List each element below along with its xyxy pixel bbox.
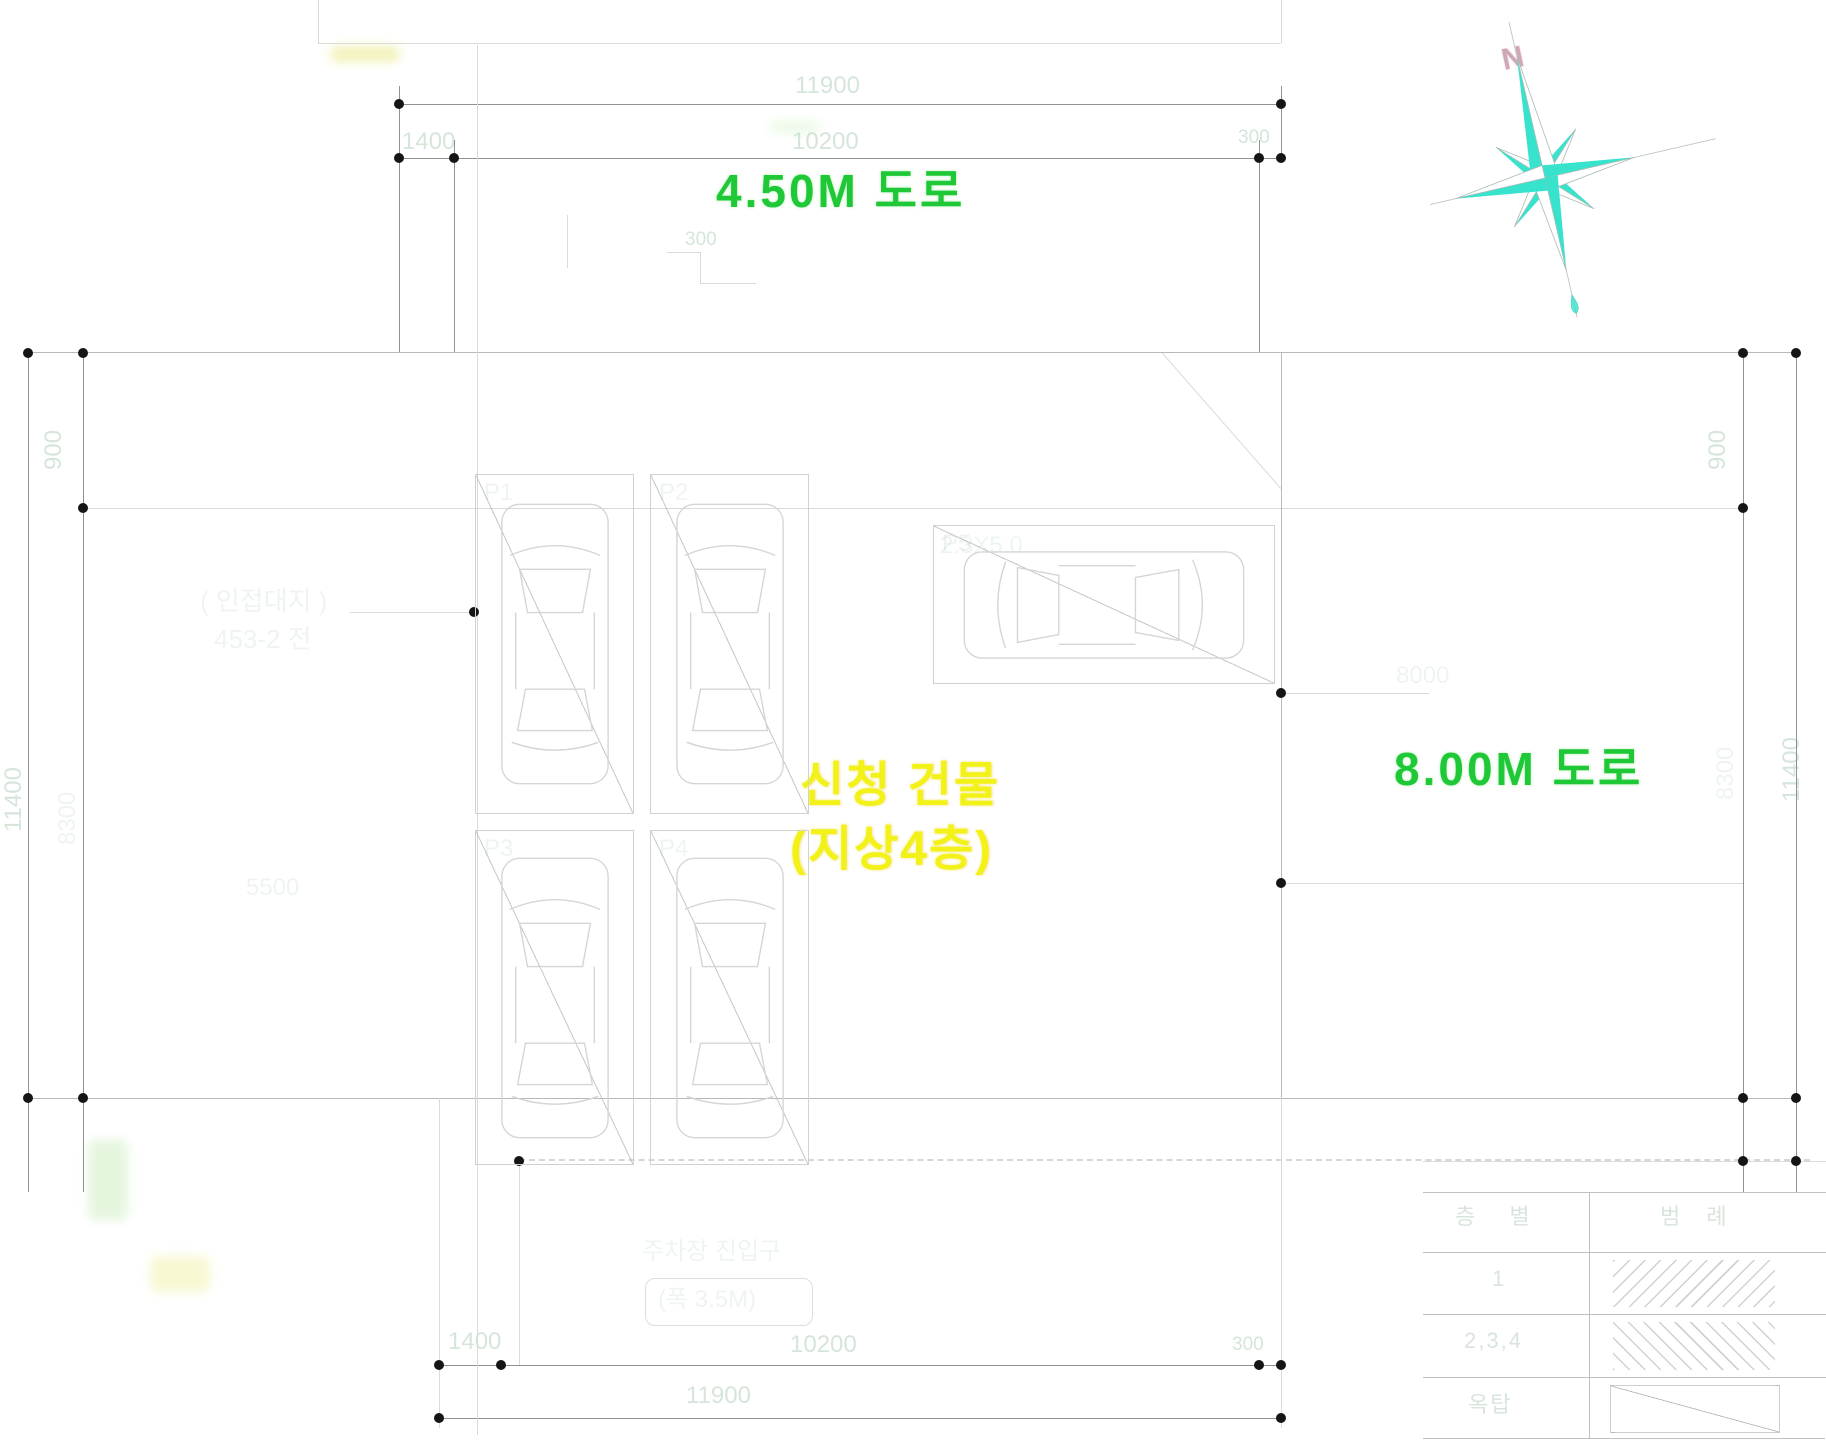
road-top-label: 4.50M 도로 (716, 168, 965, 214)
cad-h-line (83, 508, 1743, 509)
cad-h-line (399, 158, 1281, 159)
cad-v-line (519, 1161, 520, 1365)
cad-v-line (28, 352, 29, 1192)
cad-v-line (1589, 1192, 1590, 1438)
stall-label: P3 (484, 837, 513, 861)
legend-row-floor: 2,3,4 (1464, 1330, 1523, 1352)
dim-right-top: 900 (1706, 430, 1730, 470)
cad-h-line (28, 1098, 1796, 1099)
legend-swatch-diagonal (1610, 1385, 1780, 1433)
cad-v-line (1281, 0, 1282, 43)
site-chamfer-line (1161, 352, 1281, 489)
dim-top-total: 11900 (795, 74, 860, 98)
dim-dot (1791, 1093, 1801, 1103)
dim-dot (1738, 1156, 1748, 1166)
adjacent-lot-note-2: 453-2 전 (214, 626, 312, 652)
cad-h-line (1423, 1192, 1826, 1193)
dim-bottom-left: 1400 (448, 1330, 501, 1354)
dim-bottom-total: 11900 (686, 1384, 751, 1408)
dim-top-left: 1400 (402, 130, 455, 154)
dim-dot (1738, 348, 1748, 358)
parking-stall: P3 (475, 830, 634, 1165)
dim-dot (78, 503, 88, 513)
legend-row-floor: 1 (1492, 1268, 1506, 1290)
dim-dot (1738, 1093, 1748, 1103)
dim-right-mid: 8300 (1714, 747, 1738, 800)
site-plan-canvas: 4.50M 도로 8.00M 도로 신청 건물 (지상4층) N 11900 1… (0, 0, 1826, 1440)
cad-v-line (1281, 352, 1282, 1098)
cad-h-line (439, 1418, 1281, 1419)
scan-smudge (150, 1256, 210, 1292)
cad-v-line (454, 140, 455, 352)
legend-swatch-hatch-back (1613, 1322, 1775, 1370)
dim-dot (1254, 1360, 1264, 1370)
legend-swatch-hatch-forward (1613, 1260, 1775, 1307)
entry-note-1: 주차장 진입구 (642, 1240, 781, 1264)
dim-dot (394, 99, 404, 109)
dim-dot (1276, 688, 1286, 698)
cad-v-line (83, 352, 84, 1192)
dim-top-right: 300 (1238, 128, 1270, 147)
dim-road-right-width: 8000 (1396, 664, 1449, 688)
dim-site-width: 5500 (246, 876, 299, 900)
dim-dot (434, 1413, 444, 1423)
entry-callout-bracket (645, 1278, 813, 1326)
cad-h-line (700, 283, 756, 284)
cad-v-line (1743, 352, 1744, 1192)
compass-rose-icon (1430, 16, 1730, 326)
legend-header-legend: 범 례 (1660, 1206, 1737, 1228)
car-icon (496, 495, 614, 793)
dim-dot (1791, 1156, 1801, 1166)
cad-h-line (399, 104, 1281, 105)
cad-v-line (1259, 140, 1260, 352)
parking-stall: P1 (475, 474, 634, 814)
dim-dot (394, 153, 404, 163)
dim-dot (1791, 348, 1801, 358)
stall-label: P1 (484, 481, 513, 505)
dim-dot (1276, 1360, 1286, 1370)
cad-h-line (1423, 1377, 1826, 1378)
dim-bottom-mid: 10200 (790, 1333, 857, 1357)
cad-h-line (1423, 1252, 1826, 1253)
stall-label: P4 (659, 837, 688, 861)
dim-top-mid: 10200 (792, 130, 859, 154)
adjacent-lot-note-1: ( 인접대지 ) (200, 588, 327, 614)
cad-h-line (1281, 883, 1743, 884)
dim-dot (1738, 503, 1748, 513)
road-right-label: 8.00M 도로 (1394, 746, 1643, 792)
dim-dot (434, 1360, 444, 1370)
legend-row-floor: 옥탑 (1468, 1394, 1512, 1416)
dim-right-outer: 11400 (1780, 737, 1804, 802)
cad-v-line (399, 86, 400, 352)
dim-left-top: 900 (42, 430, 66, 470)
cad-h-line (28, 352, 1796, 353)
cad-v-line (700, 252, 701, 283)
parking-stall: P2 (650, 474, 809, 814)
building-label-line2: (지상4층) (790, 826, 993, 874)
dim-dot (23, 1093, 33, 1103)
dim-left-outer: 11400 (2, 767, 26, 832)
cad-v-line (439, 1098, 440, 1428)
dim-dot (1276, 878, 1286, 888)
cad-h-line (318, 43, 1281, 44)
cad-h-line (667, 252, 700, 253)
cad-v-line (567, 215, 568, 268)
car-icon (671, 849, 789, 1147)
dim-left-mid: 8300 (56, 792, 80, 845)
cad-v-line (318, 0, 319, 43)
parking-stall: P5 (933, 525, 1275, 684)
scan-smudge (88, 1140, 128, 1220)
scan-smudge (330, 46, 400, 62)
cad-h-line (350, 612, 474, 613)
dim-step: 300 (685, 230, 717, 249)
dim-dot (1276, 99, 1286, 109)
car-icon (496, 849, 614, 1147)
cad-h-line (1423, 1438, 1825, 1439)
building-label-line1: 신청 건물 (800, 762, 1000, 810)
cad-h-line (1423, 1314, 1826, 1315)
dim-dot (78, 348, 88, 358)
dim-dot (1276, 153, 1286, 163)
dim-dot (23, 348, 33, 358)
dim-dot (78, 1093, 88, 1103)
car-icon (955, 546, 1253, 664)
cad-v-line (1281, 1098, 1282, 1428)
cad-h-line (1423, 1161, 1826, 1162)
cad-v-line (1796, 352, 1797, 1192)
cad-h-line (1281, 693, 1429, 694)
dim-bottom-right: 300 (1232, 1335, 1264, 1354)
legend-header-floor: 층 별 (1455, 1206, 1544, 1228)
dim-dot (1254, 153, 1264, 163)
dim-dot (496, 1360, 506, 1370)
dim-dot (1276, 1413, 1286, 1423)
cad-h-line (439, 1365, 1281, 1366)
dim-dot (449, 153, 459, 163)
car-icon (671, 495, 789, 793)
parking-stall: P4 (650, 830, 809, 1165)
stall-label: P5 (942, 532, 971, 556)
stall-label: P2 (659, 481, 688, 505)
cad-v-line (1281, 86, 1282, 156)
